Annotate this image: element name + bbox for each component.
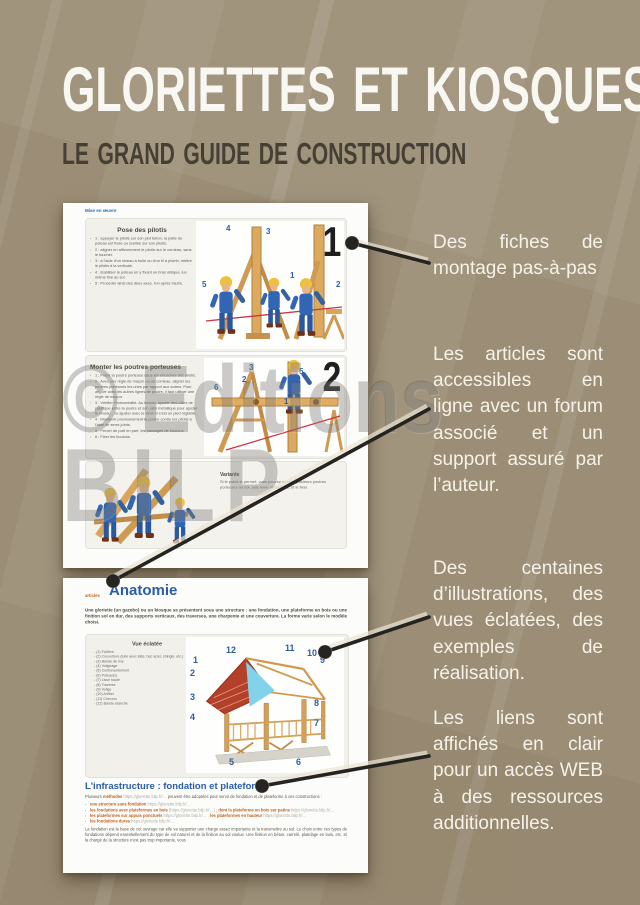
variante-illustration xyxy=(88,464,206,546)
step2-text: Monter les poutres porteuses 1 : Poser l… xyxy=(90,361,200,455)
step2-bullet: 6 : Fixer les boulons. xyxy=(95,435,200,440)
variante-panel: Variante Si le poids le permet, vous pou… xyxy=(85,461,347,549)
step2-bullet: 2 : Avec une règle de maçon ou un cordea… xyxy=(95,379,200,400)
fig-number: 7 xyxy=(314,719,319,728)
fig-number: 5 xyxy=(229,758,234,767)
step2-heading: Monter les poutres porteuses xyxy=(90,363,200,371)
callout-fiches: Des fiches de montage pas-à-pas xyxy=(433,230,603,282)
step-number-2: 2 xyxy=(322,356,341,398)
fig-number: 10 xyxy=(307,649,317,658)
step1-bullet: 3 : à l'aide d'un niveau à bulle ou d'un… xyxy=(95,259,194,269)
fig-number: 1 xyxy=(193,656,198,665)
fig-number: 5 xyxy=(299,368,303,376)
fig-number: 6 xyxy=(296,758,301,767)
fig-number: 2 xyxy=(242,376,246,384)
callout-articles-text: Les articles sont accessibles en ligne a… xyxy=(433,342,603,499)
variante-body: Si le poids le permet, vous pouvez monte… xyxy=(220,480,340,491)
step2-bullet: 3 : Vérifier l'horizontalité. Au besoin,… xyxy=(95,401,200,416)
step1-bullet: 2 : aligner en affleurement le pilotis s… xyxy=(95,247,194,257)
step2-bullet: 1 : Poser la poutre porteuse dans les en… xyxy=(95,373,200,378)
page-title: GLORIETTES ET KIOSQUES xyxy=(62,57,640,123)
infrastructure-heading: L'infrastructure : fondation et platefor… xyxy=(85,781,269,792)
callout-illustrations-text: Des centaines d’illustrations, des vues … xyxy=(433,556,603,687)
fig-number: 8 xyxy=(314,699,319,708)
step1-panel: Pose des pilotis 1 : appuyer le pilotis … xyxy=(85,218,347,352)
sheet1-nav-link: Mise en œuvre xyxy=(85,208,175,218)
callout-articles: Les articles sont accessibles en ligne a… xyxy=(433,342,603,499)
fig-number: 2 xyxy=(190,669,195,678)
step1-heading: Pose des pilotis xyxy=(90,226,194,234)
link-methodes: méthodes xyxy=(103,795,122,800)
step1-text: Pose des pilotis 1 : appuyer le pilotis … xyxy=(90,224,194,348)
callout-fiches-text: Des fiches de montage pas-à-pas xyxy=(433,230,603,282)
fig-number: 1 xyxy=(290,272,294,280)
fig-number: 2 xyxy=(336,281,340,289)
fig-number: 3 xyxy=(266,228,270,236)
fig-number: 9 xyxy=(320,656,325,665)
callout-liens-text: Les liens sont affichés en clair pour un… xyxy=(433,706,603,837)
fig-number: 1 xyxy=(284,398,288,406)
fig-number: 12 xyxy=(226,646,236,655)
variante-text: Variante Si le poids le permet, vous pou… xyxy=(220,472,340,538)
callout-liens: Les liens sont affichés en clair pour un… xyxy=(433,706,603,837)
step2-panel: Monter les poutres porteuses 1 : Poser l… xyxy=(85,355,347,459)
step1-bullet: 5 : Procéder ainsi des deux axes, l'un a… xyxy=(95,281,194,286)
infrastructure-lead: Plusieurs méthodes https://gloriette.bil… xyxy=(85,794,347,800)
callout-illustrations: Des centaines d’illustrations, des vues … xyxy=(433,556,603,687)
fig-number: 3 xyxy=(249,364,253,372)
page-subtitle: LE GRAND GUIDE DE CONSTRUCTION xyxy=(62,138,466,171)
infrastructure-link-item: les fondations dures https://gloriette.b… xyxy=(90,819,347,825)
fig-number: 5 xyxy=(202,281,206,289)
variante-heading: Variante xyxy=(220,472,340,478)
fig-number: 4 xyxy=(226,225,230,233)
carrying-beams-drawing xyxy=(88,464,206,546)
anatomie-intro: Une gloriette (un gazebo) ou un kiosque … xyxy=(85,607,347,633)
step1-bullet: 1 : appuyer le pilotis sur son plot béto… xyxy=(95,236,194,246)
fig-number: 11 xyxy=(285,644,295,653)
poster: GLORIETTES ET KIOSQUES LE GRAND GUIDE DE… xyxy=(0,0,640,905)
step1-bullet: 4 : stabiliser le poteau en y fixant un … xyxy=(95,270,194,280)
fig-number: 4 xyxy=(190,713,195,722)
screenshot-anatomie-page: articles Anatomie Une gloriette (un gaze… xyxy=(63,578,368,873)
infrastructure-footer: La fondation est la base de cet ouvrage … xyxy=(85,826,347,843)
fig-number: 6 xyxy=(214,384,218,392)
fig-number: 3 xyxy=(190,693,195,702)
step-number-1: 1 xyxy=(322,221,341,263)
step2-bullet: 4 : Maintenir provisoirement la poutre c… xyxy=(95,417,200,427)
anatomie-heading: Anatomie xyxy=(109,582,177,599)
step2-bullet: 5 : Percer de part en part, les passages… xyxy=(95,428,200,433)
exploded-view-panel: Vue éclatée (1) Faîtière (2) Couverture … xyxy=(85,634,349,778)
gazebo-illustration: 1 2 3 4 5 6 7 8 9 10 11 12 xyxy=(186,637,344,773)
screenshot-montage-page: Mise en œuvre Pose des pilotis 1 : appuy… xyxy=(63,203,368,568)
infrastructure-text: Plusieurs méthodes https://gloriette.bil… xyxy=(85,794,347,873)
